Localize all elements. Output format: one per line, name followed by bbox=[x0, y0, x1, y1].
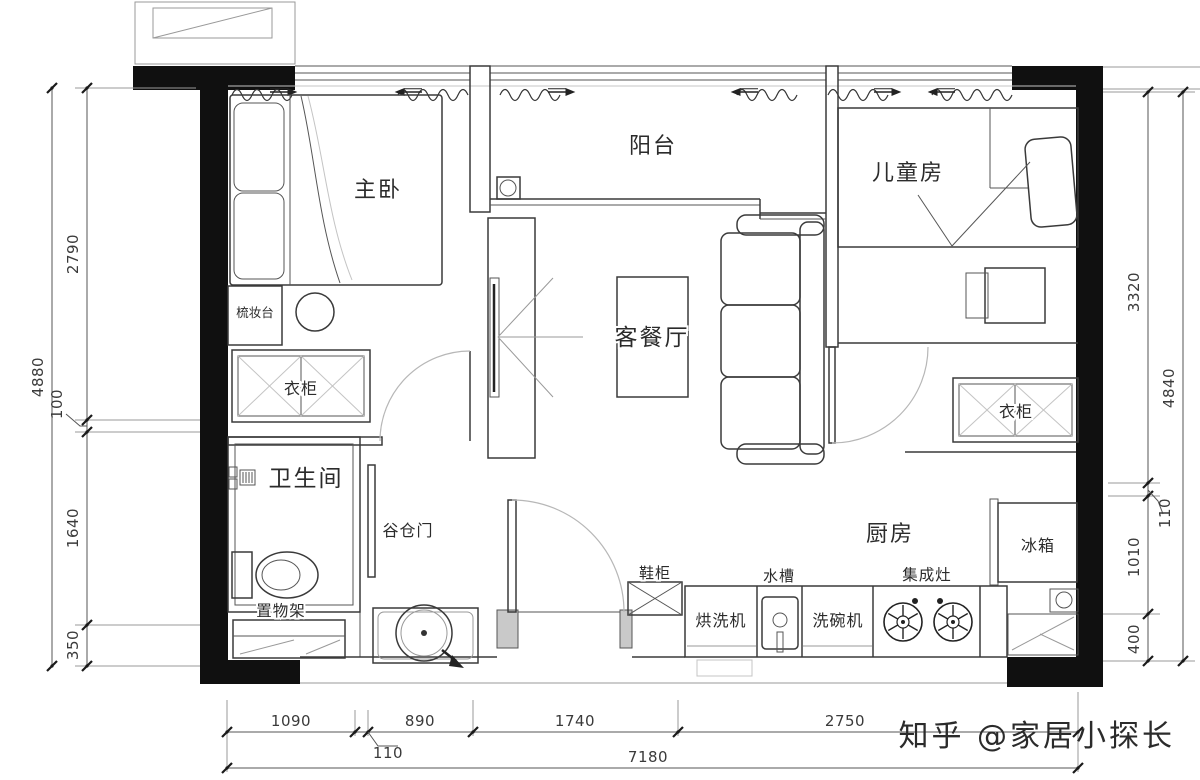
svg-text:110: 110 bbox=[1156, 498, 1174, 528]
label-integrated-stove: 集成灶 bbox=[902, 566, 952, 584]
entry-door bbox=[497, 500, 632, 648]
label-kids-room: 儿童房 bbox=[872, 161, 944, 186]
kitchen-counter bbox=[685, 586, 1007, 676]
svg-text:1640: 1640 bbox=[64, 508, 82, 548]
master-bedroom-door bbox=[380, 351, 470, 441]
label-dressing-table: 梳妆台 bbox=[236, 305, 274, 320]
svg-text:100: 100 bbox=[48, 389, 66, 419]
svg-text:350: 350 bbox=[64, 630, 82, 660]
floor-plan-page: 主卧 阳台 儿童房 客餐厅 卫生间 厨房 梳妆台 衣柜 衣柜 谷仓门 置物架 鞋… bbox=[0, 0, 1200, 780]
svg-text:400: 400 bbox=[1125, 624, 1143, 654]
label-barn-door: 谷仓门 bbox=[382, 521, 433, 540]
label-shoe-cabinet: 鞋柜 bbox=[639, 564, 671, 582]
balcony-drain bbox=[497, 177, 520, 199]
kitchen-corner-unit bbox=[1008, 589, 1078, 655]
label-wardrobe-left: 衣柜 bbox=[284, 379, 318, 398]
sofa bbox=[721, 215, 824, 464]
label-master-bedroom: 主卧 bbox=[354, 178, 402, 203]
master-bed bbox=[230, 95, 442, 285]
kitchen-sink bbox=[762, 597, 798, 652]
dimension-right: 3320 110 1010 400 4840 bbox=[1103, 87, 1195, 666]
label-sink: 水槽 bbox=[763, 567, 795, 585]
barn-door bbox=[368, 465, 375, 577]
neighbor-wall-lines bbox=[1103, 67, 1200, 89]
svg-text:1740: 1740 bbox=[555, 712, 595, 730]
svg-text:890: 890 bbox=[405, 712, 435, 730]
label-dishwasher: 洗碗机 bbox=[812, 611, 863, 630]
floor-plan-drawing: 主卧 阳台 儿童房 客餐厅 卫生间 厨房 梳妆台 衣柜 衣柜 谷仓门 置物架 鞋… bbox=[0, 0, 1200, 780]
svg-text:7180: 7180 bbox=[628, 748, 668, 766]
svg-text:110: 110 bbox=[373, 744, 403, 762]
svg-text:1010: 1010 bbox=[1125, 537, 1143, 577]
ac-platform-outside bbox=[135, 2, 295, 64]
svg-text:2790: 2790 bbox=[64, 234, 82, 274]
stove-burners bbox=[884, 598, 972, 641]
svg-text:4880: 4880 bbox=[29, 357, 47, 397]
watermark: 知乎 @家居小探长 bbox=[898, 719, 1175, 754]
toilet bbox=[232, 552, 318, 598]
label-kitchen: 厨房 bbox=[866, 522, 914, 547]
dimension-left: 2790 100 1640 350 4880 bbox=[29, 83, 200, 671]
kids-desk bbox=[966, 268, 1045, 323]
wash-basin bbox=[373, 605, 478, 668]
kids-room-door bbox=[829, 347, 928, 443]
svg-text:3320: 3320 bbox=[1125, 272, 1143, 312]
label-bathroom: 卫生间 bbox=[269, 466, 344, 492]
tv-cabinet bbox=[488, 218, 583, 458]
storage-shelf bbox=[233, 620, 345, 658]
label-living-dining: 客餐厅 bbox=[615, 325, 690, 351]
svg-text:2750: 2750 bbox=[825, 712, 865, 730]
label-wardrobe-right: 衣柜 bbox=[999, 402, 1033, 421]
label-fridge: 冰箱 bbox=[1021, 536, 1055, 555]
towel-rail-icon bbox=[229, 467, 255, 489]
svg-text:1090: 1090 bbox=[271, 712, 311, 730]
exterior-walls bbox=[133, 66, 1103, 687]
label-shelf-rack: 置物架 bbox=[256, 602, 306, 620]
shoe-cabinet bbox=[628, 582, 682, 615]
label-balcony: 阳台 bbox=[629, 134, 677, 159]
label-washer-dryer: 烘洗机 bbox=[695, 611, 746, 630]
svg-text:4840: 4840 bbox=[1160, 368, 1178, 408]
